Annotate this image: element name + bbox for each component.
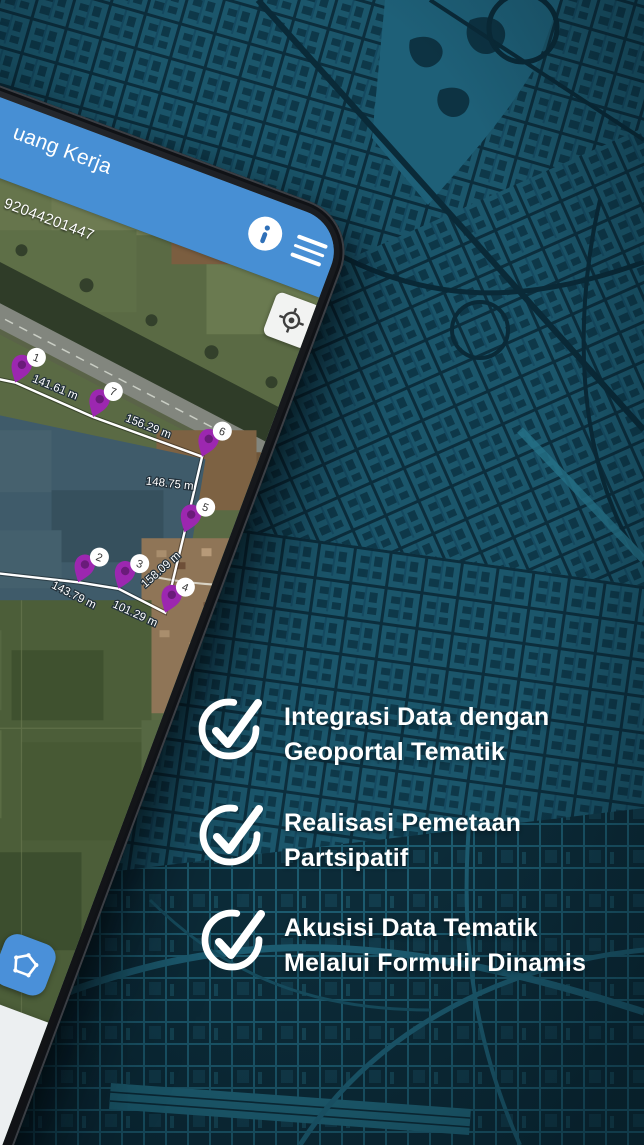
info-icon	[243, 212, 287, 256]
feature-text: Realisasi Pemetaan Partsipatif	[284, 806, 521, 876]
menu-button[interactable]	[289, 234, 328, 270]
info-button[interactable]	[243, 212, 287, 256]
checkmark-icon	[195, 690, 267, 762]
checkmark-icon	[196, 796, 268, 868]
checkmark-icon	[198, 901, 270, 973]
gps-target-icon	[273, 302, 309, 338]
feature-text: Akusisi Data Tematik Melalui Formulir Di…	[284, 911, 586, 981]
draw-area-icon	[6, 946, 45, 985]
feature-text: Integrasi Data dengan Geoportal Tematik	[284, 700, 549, 770]
promo-banner: uang Kerja	[0, 0, 644, 1145]
app-bar-title: uang Kerja	[10, 121, 115, 180]
